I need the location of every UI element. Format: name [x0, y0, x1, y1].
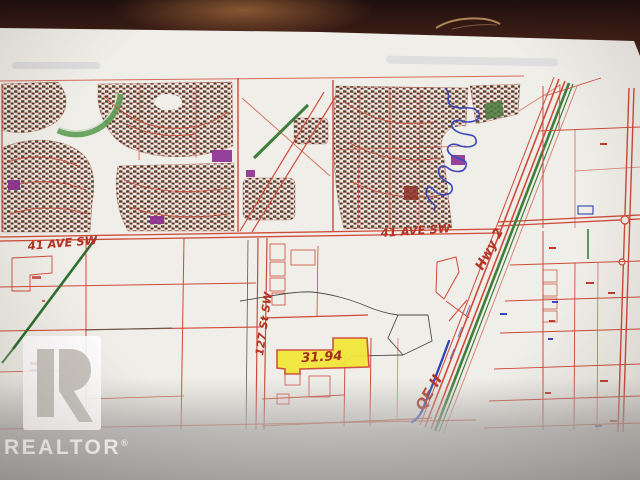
realtor-logo-r-icon — [23, 336, 101, 430]
pond — [154, 94, 182, 110]
realtor-brand-text: REALTOR — [4, 436, 121, 459]
realtor-watermark-label: REALTOR® — [4, 437, 124, 458]
registered-symbol: ® — [121, 438, 128, 448]
annotation-parcel-acreage: 31.94 — [301, 349, 343, 366]
realtor-logo-box — [23, 336, 101, 430]
listing-photo: 41 AVE SW 41 AVE SW 127 St SW Hwy 2 QE I… — [0, 0, 640, 480]
realtor-watermark: REALTOR® — [4, 336, 124, 458]
red-site-block — [404, 186, 418, 200]
